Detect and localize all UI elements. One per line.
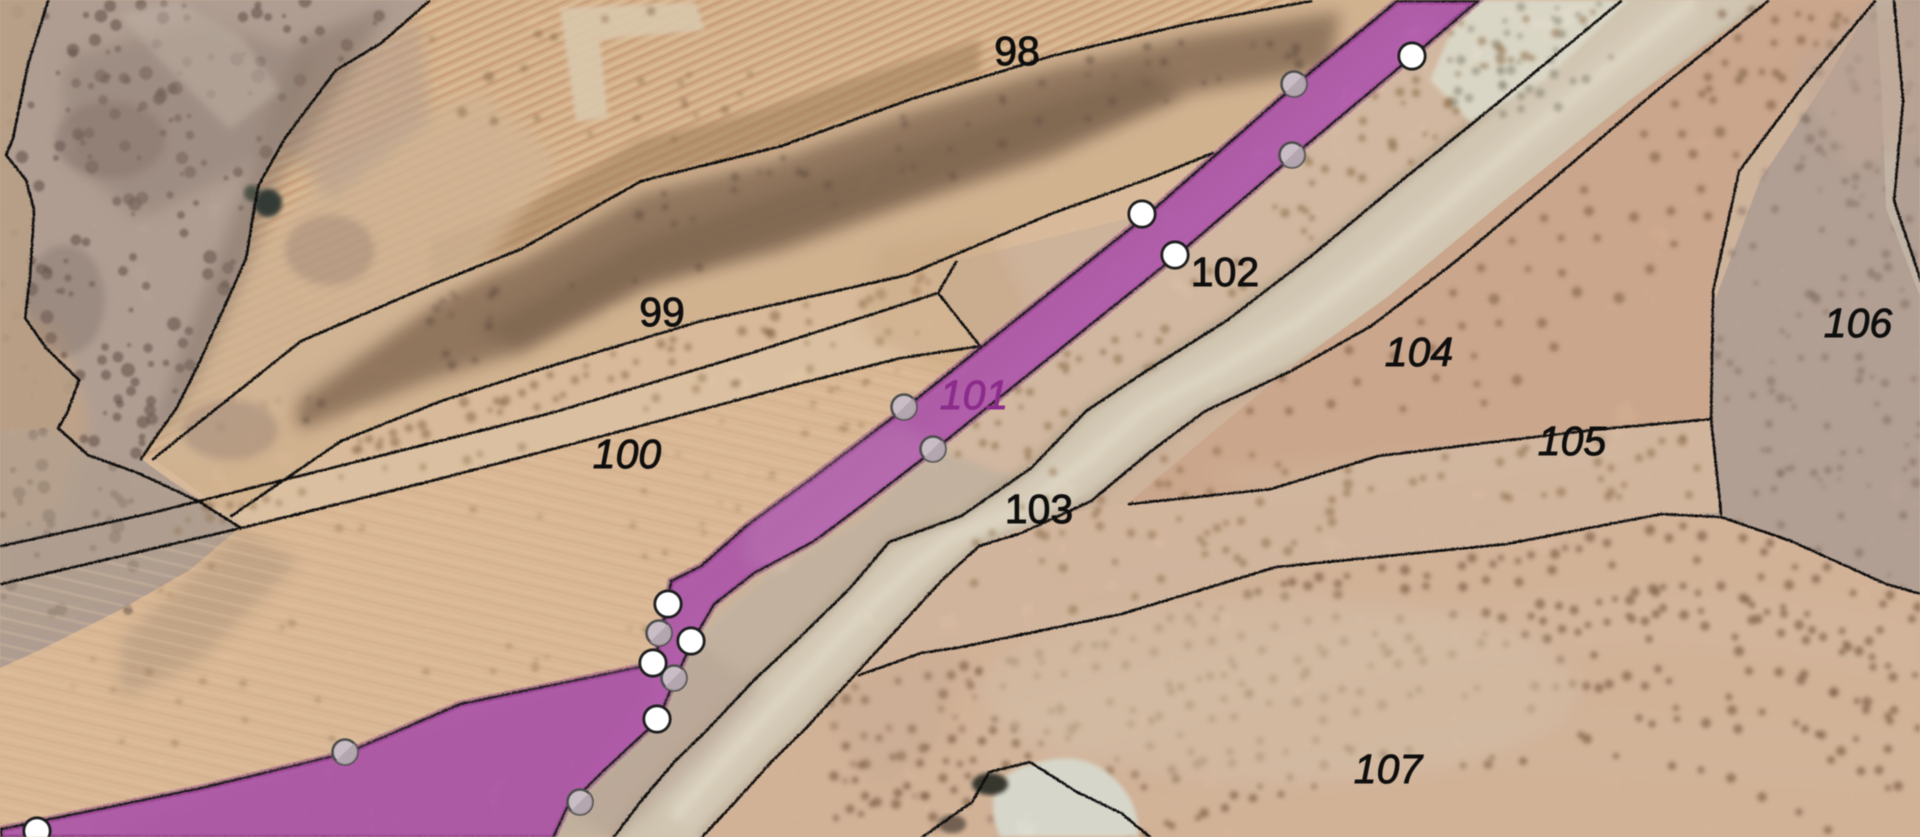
svg-text:104: 104: [1385, 329, 1453, 375]
svg-text:99: 99: [639, 289, 685, 335]
svg-text:102: 102: [1191, 249, 1259, 295]
svg-text:98: 98: [994, 28, 1040, 74]
svg-text:107: 107: [1354, 746, 1425, 792]
svg-text:101: 101: [940, 372, 1008, 418]
svg-text:105: 105: [1538, 418, 1607, 464]
svg-text:103: 103: [1005, 486, 1073, 532]
svg-text:106: 106: [1824, 300, 1893, 346]
svg-text:100: 100: [593, 431, 662, 477]
